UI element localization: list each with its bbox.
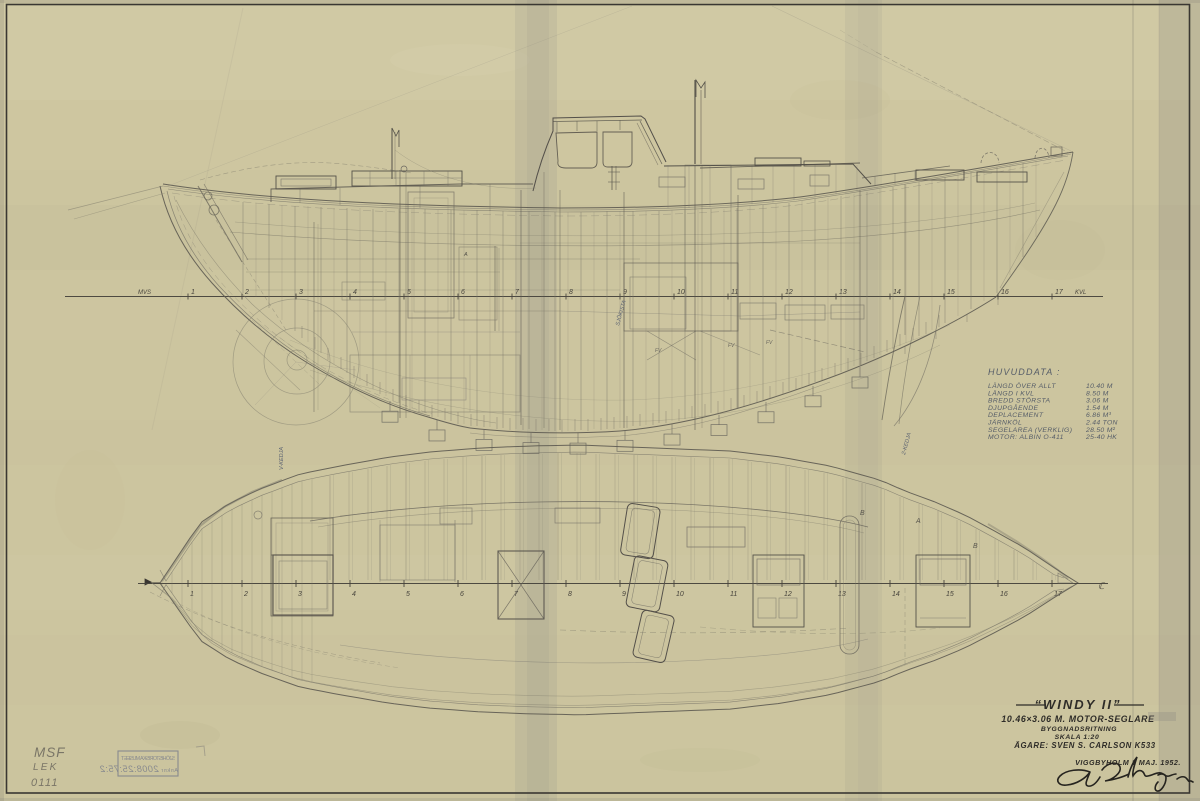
svg-text:B: B — [973, 543, 978, 550]
svg-text:B: B — [860, 510, 865, 517]
svg-text:KVL: KVL — [1075, 290, 1086, 296]
svg-text:9: 9 — [622, 591, 626, 598]
svg-text:LÄNGD ÖVER ALLT: LÄNGD ÖVER ALLT — [988, 382, 1056, 390]
svg-text:13: 13 — [838, 591, 846, 598]
svg-text:MOTOR: ALBIN O-411: MOTOR: ALBIN O-411 — [988, 434, 1064, 441]
svg-text:1.54 M: 1.54 M — [1086, 405, 1109, 412]
svg-text:DJUPGÅENDE: DJUPGÅENDE — [988, 403, 1039, 412]
svg-text:0111: 0111 — [31, 777, 59, 789]
svg-text:JÄRNKÖL: JÄRNKÖL — [987, 419, 1022, 427]
svg-text:LÄNGD I KVL: LÄNGD I KVL — [988, 389, 1034, 397]
svg-text:8.50 M: 8.50 M — [1086, 390, 1109, 397]
svg-text:3: 3 — [298, 591, 302, 598]
svg-text:16: 16 — [1001, 289, 1009, 296]
svg-text:10: 10 — [677, 289, 685, 296]
svg-text:A: A — [463, 252, 468, 258]
svg-text:11: 11 — [730, 591, 737, 598]
svg-text:6.86 M³: 6.86 M³ — [1086, 412, 1112, 419]
svg-text:BREDD STÖRSTA: BREDD STÖRSTA — [988, 397, 1051, 405]
svg-text:FV: FV — [655, 348, 662, 354]
svg-text:VIGGBYHOLM 1 MAJ. 1952.: VIGGBYHOLM 1 MAJ. 1952. — [1075, 758, 1181, 767]
svg-text:16: 16 — [1000, 591, 1008, 598]
svg-text:ÄGARE: SVEN S. CARLSON K533: ÄGARE: SVEN S. CARLSON K533 — [1013, 741, 1155, 750]
svg-text:28.50 M²: 28.50 M² — [1085, 427, 1116, 434]
svg-text:10.40 M: 10.40 M — [1086, 383, 1113, 390]
svg-text:SEGELAREA (VERKLIG): SEGELAREA (VERKLIG) — [988, 427, 1072, 434]
svg-text:SJÖHISTORISKA MUSEET: SJÖHISTORISKA MUSEET — [120, 755, 175, 762]
svg-text:DEPLACEMENT: DEPLACEMENT — [988, 412, 1044, 419]
svg-text:10.46×3.06 M. MOTOR-SEGLARE: 10.46×3.06 M. MOTOR-SEGLARE — [1001, 714, 1155, 724]
svg-text:13: 13 — [839, 289, 847, 296]
svg-text:1: 1 — [191, 289, 195, 296]
svg-text:4: 4 — [352, 591, 356, 598]
svg-text:25-40 HK: 25-40 HK — [1085, 434, 1117, 441]
svg-text:FV: FV — [766, 340, 773, 346]
svg-text:12: 12 — [784, 591, 792, 598]
svg-text:FV: FV — [728, 343, 735, 349]
svg-text:15: 15 — [947, 289, 955, 296]
svg-text:6: 6 — [460, 591, 464, 598]
svg-text:10: 10 — [676, 591, 684, 598]
svg-text:2: 2 — [244, 289, 249, 296]
svg-text:2: 2 — [243, 591, 248, 598]
svg-text:14: 14 — [892, 591, 900, 598]
svg-text:HUVUDDATA :: HUVUDDATA : — [988, 367, 1061, 377]
svg-text:MVS: MVS — [138, 290, 151, 296]
svg-text:SKALA 1:20: SKALA 1:20 — [1055, 734, 1100, 741]
svg-text:LEK: LEK — [33, 762, 59, 773]
svg-text:“WINDY II”: “WINDY II” — [1035, 697, 1122, 712]
svg-text:3.06 M: 3.06 M — [1086, 398, 1109, 405]
svg-text:BYGGNADSRITNING: BYGGNADSRITNING — [1041, 726, 1117, 733]
svg-text:5: 5 — [406, 591, 410, 598]
svg-text:17: 17 — [1055, 289, 1064, 296]
svg-text:14: 14 — [893, 289, 901, 296]
svg-text:V-KEDJA: V-KEDJA — [279, 447, 285, 470]
svg-text:15: 15 — [946, 591, 954, 598]
svg-text:MSF: MSF — [34, 745, 66, 760]
svg-text:8: 8 — [568, 591, 572, 598]
svg-text:2.44 TON: 2.44 TON — [1085, 420, 1118, 427]
svg-text:A: A — [915, 518, 921, 525]
